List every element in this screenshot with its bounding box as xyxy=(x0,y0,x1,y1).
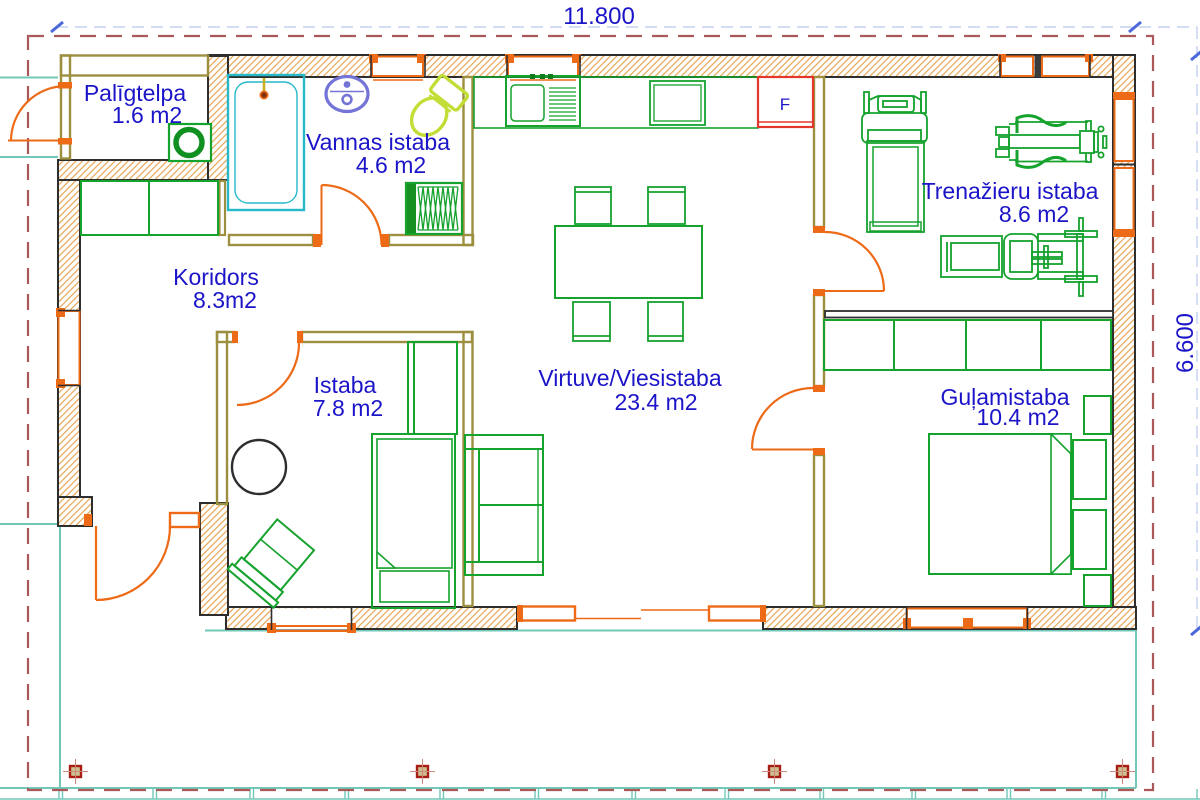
svg-text:10.4 m2: 10.4 m2 xyxy=(976,404,1059,430)
svg-text:6.600: 6.600 xyxy=(1172,313,1199,373)
svg-text:7.8 m2: 7.8 m2 xyxy=(313,395,383,421)
svg-text:11.800: 11.800 xyxy=(563,3,635,30)
svg-text:1.6 m2: 1.6 m2 xyxy=(112,102,182,128)
svg-text:8.6 m2: 8.6 m2 xyxy=(999,201,1069,227)
svg-text:Virtuve/Viesistaba: Virtuve/Viesistaba xyxy=(538,365,721,391)
svg-text:F: F xyxy=(780,95,790,114)
svg-text:4.6 m2: 4.6 m2 xyxy=(356,152,426,178)
svg-text:23.4 m2: 23.4 m2 xyxy=(614,389,697,415)
svg-text:8.3m2: 8.3m2 xyxy=(193,287,257,313)
